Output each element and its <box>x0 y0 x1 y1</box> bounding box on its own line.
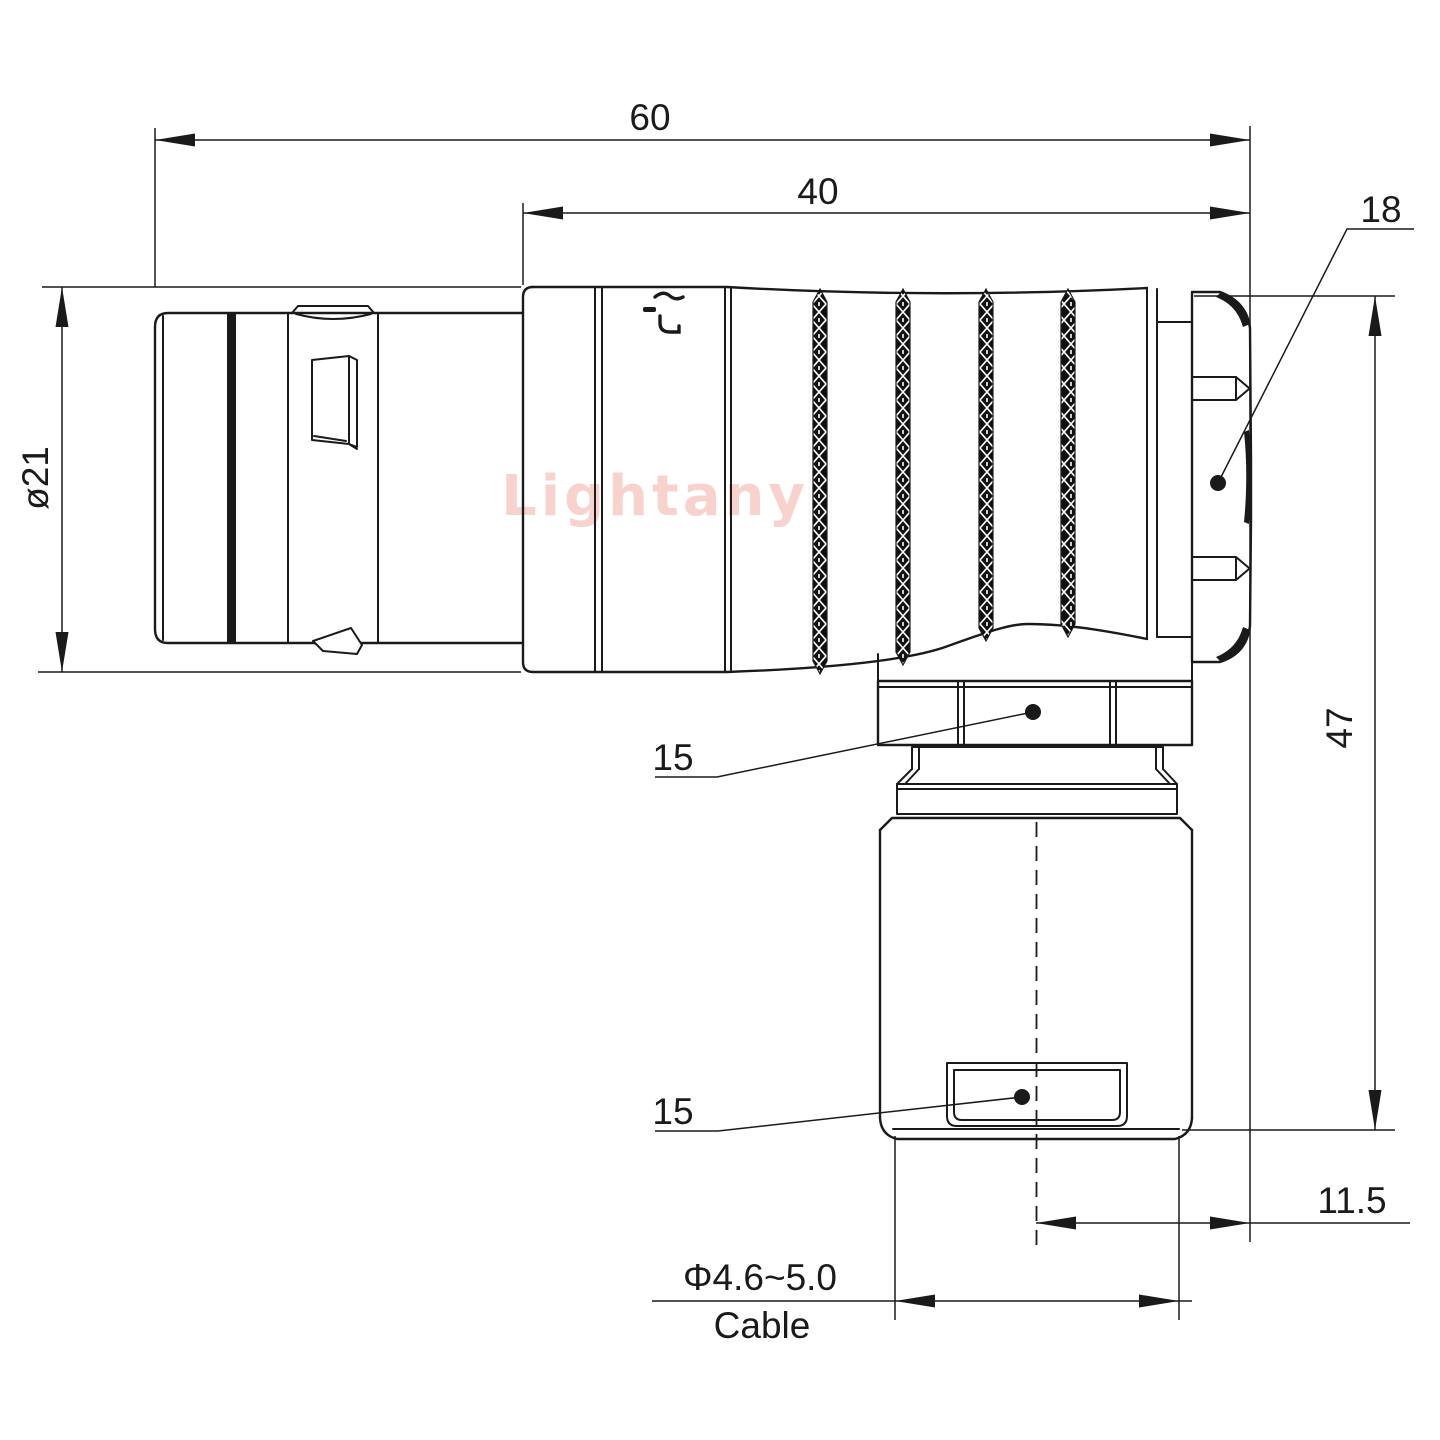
point-dot-icon <box>1025 704 1041 720</box>
dim-11-5-label: 11.5 <box>1317 1180 1386 1221</box>
technical-drawing-page: Lightany <box>0 0 1440 1440</box>
connector-drawing: Lightany <box>0 0 1440 1440</box>
dim-cable: Φ4.6~5.0 Cable <box>652 1136 1192 1346</box>
dim-front-length: 40 <box>523 171 1250 285</box>
dim-shell-diameter: ø21 <box>15 287 521 672</box>
ring-chamfer <box>897 769 1177 784</box>
dim-cable-range-label: Φ4.6~5.0 <box>683 1257 837 1298</box>
watermark-text: Lightany <box>501 464 809 529</box>
point-dot-icon <box>1210 475 1226 491</box>
point-dot-icon <box>1014 1089 1030 1105</box>
dim-cable-word-label: Cable <box>714 1305 811 1346</box>
latch-bottom-tab <box>313 628 362 654</box>
dim-15b-label: 15 <box>652 1091 693 1132</box>
shell-right-edges <box>1147 288 1157 639</box>
shell-bottom-edge <box>533 624 1147 672</box>
dim-40-label: 40 <box>797 171 838 212</box>
dim-exit-offset: 11.5 <box>1036 1180 1410 1230</box>
lightany-logo-icon <box>643 293 683 332</box>
latch-window <box>312 356 349 444</box>
dim-60-label: 60 <box>629 97 670 138</box>
dim-18-label: 18 <box>1360 189 1401 230</box>
plug-barrel-outline <box>155 313 523 643</box>
ring-2 <box>897 784 1177 814</box>
ring-1 <box>912 747 1163 769</box>
elbow-joins <box>878 654 1192 681</box>
nut-step <box>1157 322 1192 637</box>
dim-47-label: 47 <box>1319 707 1360 748</box>
leader-backnut-15: 15 <box>652 704 1041 778</box>
dim-dia21-label: ø21 <box>15 446 56 510</box>
connector-rear-elbow <box>878 681 1192 1245</box>
knurl-bands <box>813 289 1075 674</box>
latch-window-side <box>349 356 357 449</box>
latch-top-tab-arc <box>296 314 371 319</box>
plug-seal-band <box>227 313 236 643</box>
dim-15a-label: 15 <box>652 737 693 778</box>
shell-top-edge <box>533 287 1147 293</box>
